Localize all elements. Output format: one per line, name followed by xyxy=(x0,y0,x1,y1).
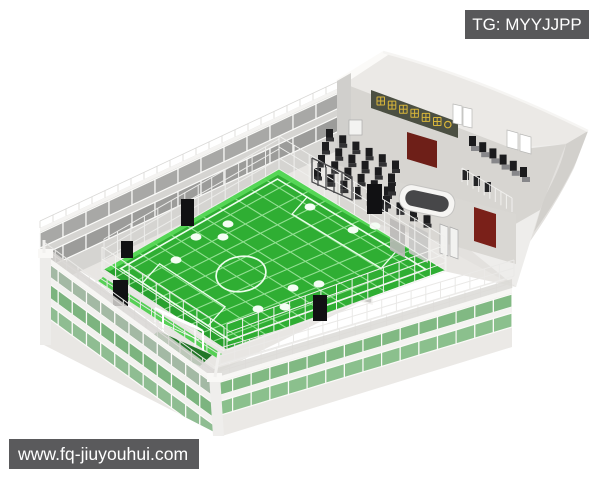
svg-text:TG: MYYJJPP: TG: MYYJJPP xyxy=(472,15,582,34)
svg-text:www.fq-jiuyouhui.com: www.fq-jiuyouhui.com xyxy=(17,444,188,464)
